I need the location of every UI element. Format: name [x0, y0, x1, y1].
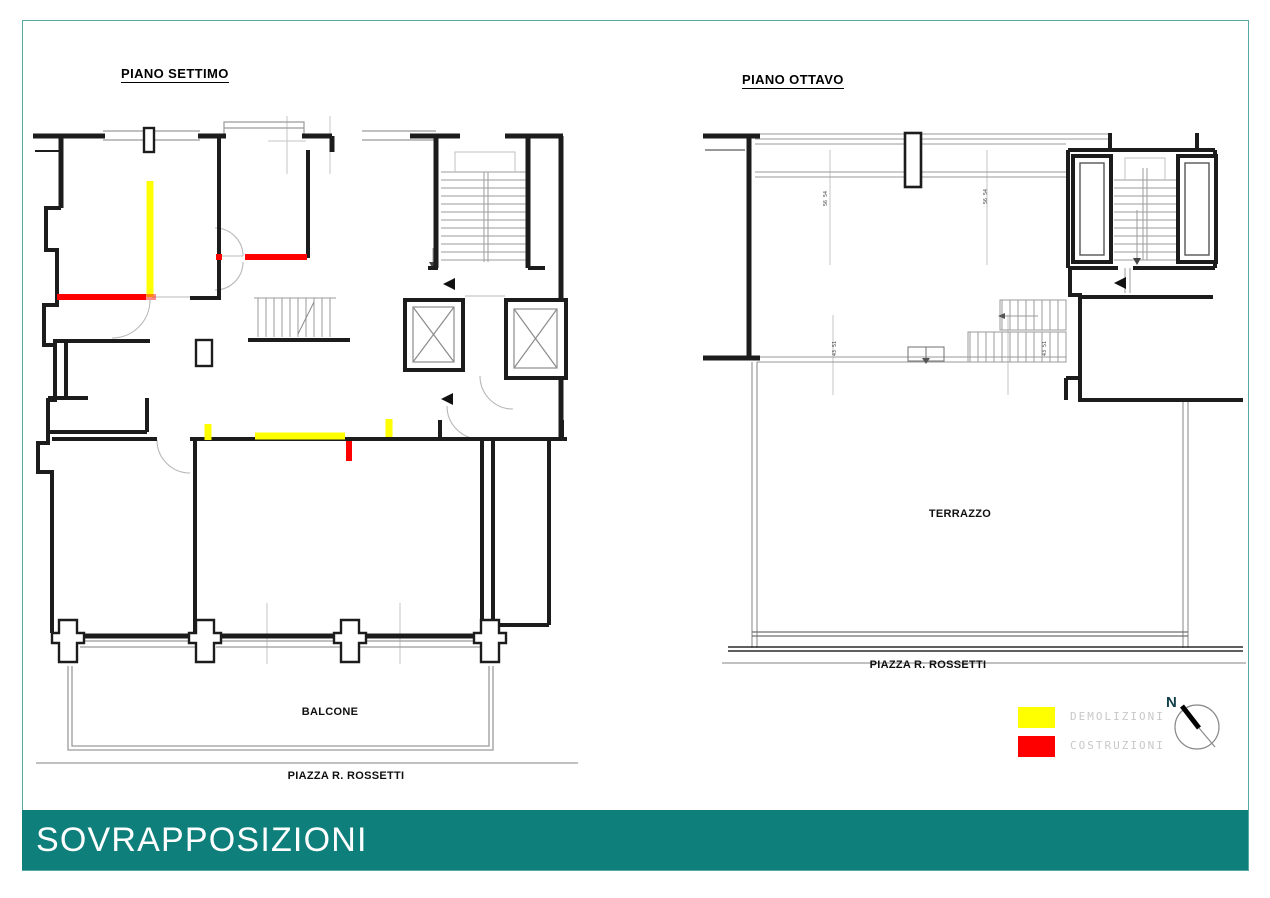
right-plan-title: PIANO OTTAVO — [742, 72, 844, 89]
stairs-terrace — [968, 300, 1066, 362]
terrazzo-label: TERRAZZO — [905, 508, 1015, 520]
stairs-left-plan — [433, 152, 526, 262]
svg-text:43 51: 43 51 — [832, 341, 838, 356]
left-plan-linework — [33, 116, 578, 763]
right-plan-linework: 56 54 56 54 43 51 43 51 — [703, 133, 1246, 663]
svg-text:56 54: 56 54 — [823, 191, 829, 206]
north-compass: N — [1166, 694, 1219, 749]
legend — [1018, 707, 1055, 757]
floor-plan-drawing: 56 54 56 54 43 51 43 51 N — [0, 0, 1270, 898]
demolizioni-label: DEMOLIZIONI — [1070, 710, 1165, 723]
door-arrow-right — [1114, 277, 1126, 289]
compass-needle — [1182, 706, 1199, 728]
demolizioni-swatch — [1018, 707, 1055, 728]
svg-text:56 54: 56 54 — [983, 189, 989, 204]
demolition-marks — [150, 181, 389, 440]
balcone-label: BALCONE — [280, 706, 380, 718]
piazza-label-right: PIAZZA R. ROSSETTI — [848, 659, 1008, 671]
costruzioni-swatch — [1018, 736, 1055, 757]
piazza-label-left: PIAZZA R. ROSSETTI — [266, 770, 426, 782]
costruzioni-label: COSTRUZIONI — [1070, 739, 1165, 752]
elevator-shafts-left — [405, 300, 566, 378]
title-banner: SOVRAPPOSIZIONI — [22, 810, 1248, 870]
plan-sheet: { "page": {"background": "#ffffff", "bor… — [0, 0, 1270, 898]
sheet-title: SOVRAPPOSIZIONI — [36, 821, 368, 860]
left-plan-title: PIANO SETTIMO — [121, 66, 229, 83]
svg-text:43 51: 43 51 — [1042, 341, 1048, 356]
dimension-marks: 56 54 56 54 43 51 43 51 — [823, 189, 1048, 356]
north-label: N — [1166, 694, 1177, 711]
room-right-plan — [1066, 268, 1243, 402]
